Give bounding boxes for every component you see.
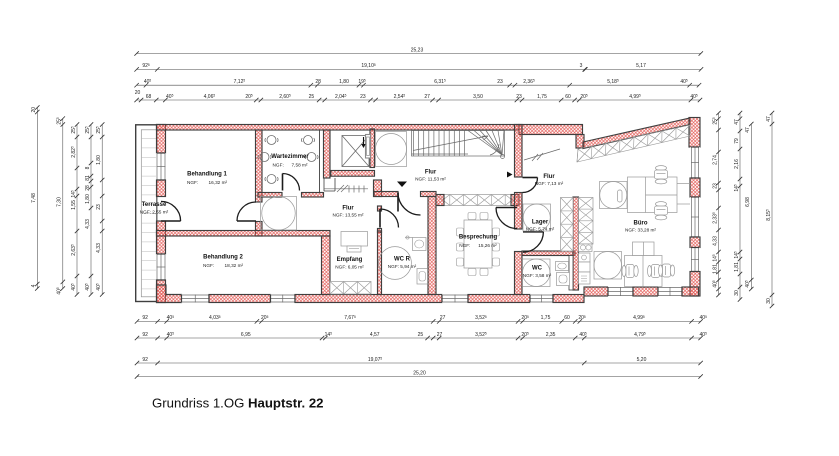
svg-text:Behandlung 1: Behandlung 1 xyxy=(187,172,227,178)
svg-text:1,75: 1,75 xyxy=(541,315,551,321)
svg-text:4,33: 4,33 xyxy=(96,243,102,253)
svg-text:92: 92 xyxy=(142,357,148,363)
svg-text:23: 23 xyxy=(712,183,718,189)
svg-text:27: 27 xyxy=(424,94,430,100)
svg-text:Besprechung: Besprechung xyxy=(459,235,498,241)
svg-text:79: 79 xyxy=(734,138,740,144)
svg-text:6,95: 6,95 xyxy=(241,332,251,338)
svg-text:Büro: Büro xyxy=(634,221,648,227)
svg-text:60: 60 xyxy=(565,94,571,100)
svg-text:NGF: 5,94 m²: NGF: 5,94 m² xyxy=(388,264,417,269)
svg-text:7,48: 7,48 xyxy=(31,193,37,203)
svg-text:6,98: 6,98 xyxy=(745,197,751,207)
svg-text:23: 23 xyxy=(360,94,366,100)
svg-text:2,35: 2,35 xyxy=(546,332,556,338)
svg-text:Terrasse: Terrasse xyxy=(142,202,167,208)
svg-text:NGF: 16,32 m²: NGF: 16,32 m² xyxy=(187,180,228,185)
svg-text:28: 28 xyxy=(85,185,91,191)
svg-text:2,74: 2,74 xyxy=(712,155,718,165)
svg-text:23: 23 xyxy=(497,79,503,85)
svg-text:25,20: 25,20 xyxy=(413,370,426,376)
svg-text:Flur: Flur xyxy=(543,174,555,180)
svg-text:25: 25 xyxy=(309,94,315,100)
svg-text:Flur: Flur xyxy=(342,206,354,212)
svg-text:19,105: 19,105 xyxy=(361,63,376,69)
svg-text:NGF: 18,32 m²: NGF: 18,32 m² xyxy=(203,263,244,268)
svg-text:5,17: 5,17 xyxy=(636,63,646,69)
svg-text:23: 23 xyxy=(516,94,522,100)
svg-text:20: 20 xyxy=(31,107,37,113)
svg-text:1,81: 1,81 xyxy=(734,262,740,272)
svg-text:NGF: 15,26 m²: NGF: 15,26 m² xyxy=(459,243,497,248)
svg-text:1,75: 1,75 xyxy=(537,94,547,100)
svg-text:27: 27 xyxy=(437,332,443,338)
svg-text:30: 30 xyxy=(734,290,740,296)
svg-text:Grundriss 1.OG Hauptstr. 22: Grundriss 1.OG Hauptstr. 22 xyxy=(152,396,324,411)
svg-text:NGF: 33,28 m²: NGF: 33,28 m² xyxy=(625,228,656,233)
svg-text:WC: WC xyxy=(532,266,543,272)
svg-text:1,80: 1,80 xyxy=(85,194,91,204)
svg-text:WC R: WC R xyxy=(394,257,411,263)
svg-text:4,33: 4,33 xyxy=(712,236,718,246)
svg-text:30: 30 xyxy=(766,298,772,304)
svg-text:1,80: 1,80 xyxy=(339,79,349,85)
svg-text:92: 92 xyxy=(142,332,148,338)
svg-text:1,55: 1,55 xyxy=(71,200,77,210)
svg-text:Wartezimmer: Wartezimmer xyxy=(271,154,309,160)
svg-text:47: 47 xyxy=(734,119,740,125)
svg-text:Empfang: Empfang xyxy=(337,257,363,263)
svg-text:3,50: 3,50 xyxy=(473,94,483,100)
svg-text:8: 8 xyxy=(85,166,91,169)
svg-text:4: 4 xyxy=(31,284,37,287)
svg-text:28: 28 xyxy=(315,79,321,85)
svg-text:2,16: 2,16 xyxy=(734,159,740,169)
svg-text:NGF: 11,53 m²: NGF: 11,53 m² xyxy=(415,177,446,182)
svg-text:1,81: 1,81 xyxy=(712,264,718,274)
svg-text:1,80: 1,80 xyxy=(96,155,102,165)
svg-text:NGF: 5,74 m²: NGF: 5,74 m² xyxy=(526,227,555,232)
svg-text:19,075: 19,075 xyxy=(368,356,383,362)
svg-text:27: 27 xyxy=(440,315,446,321)
svg-text:5,20: 5,20 xyxy=(637,357,647,363)
svg-text:Flur: Flur xyxy=(425,170,437,176)
svg-text:47: 47 xyxy=(766,116,772,122)
svg-text:Lager: Lager xyxy=(532,220,549,226)
svg-text:92: 92 xyxy=(142,315,148,321)
svg-text:Behandlung 2: Behandlung 2 xyxy=(203,255,243,261)
svg-text:25,23: 25,23 xyxy=(411,47,424,53)
svg-text:47: 47 xyxy=(745,127,751,133)
svg-text:NGF: 6,05 m²: NGF: 6,05 m² xyxy=(335,265,364,270)
svg-text:20: 20 xyxy=(135,90,141,96)
svg-text:23: 23 xyxy=(96,204,102,210)
svg-text:NGF: 3,58 m²: NGF: 3,58 m² xyxy=(523,273,552,278)
svg-text:4,33: 4,33 xyxy=(85,219,91,229)
svg-text:7,30: 7,30 xyxy=(57,197,63,207)
svg-text:NGF: 7,58 m²: NGF: 7,58 m² xyxy=(273,163,308,168)
svg-text:NGF: 13,55 m²: NGF: 13,55 m² xyxy=(333,213,364,218)
svg-text:4,57: 4,57 xyxy=(370,332,380,338)
svg-text:3: 3 xyxy=(580,63,583,69)
svg-text:60: 60 xyxy=(564,315,570,321)
svg-text:81: 81 xyxy=(85,175,91,181)
svg-text:NGF: 2,55 m²: NGF: 2,55 m² xyxy=(140,210,169,215)
svg-text:NGF: 7,13 m²: NGF: 7,13 m² xyxy=(535,181,564,186)
svg-text:68: 68 xyxy=(146,94,152,100)
svg-text:25: 25 xyxy=(418,332,424,338)
